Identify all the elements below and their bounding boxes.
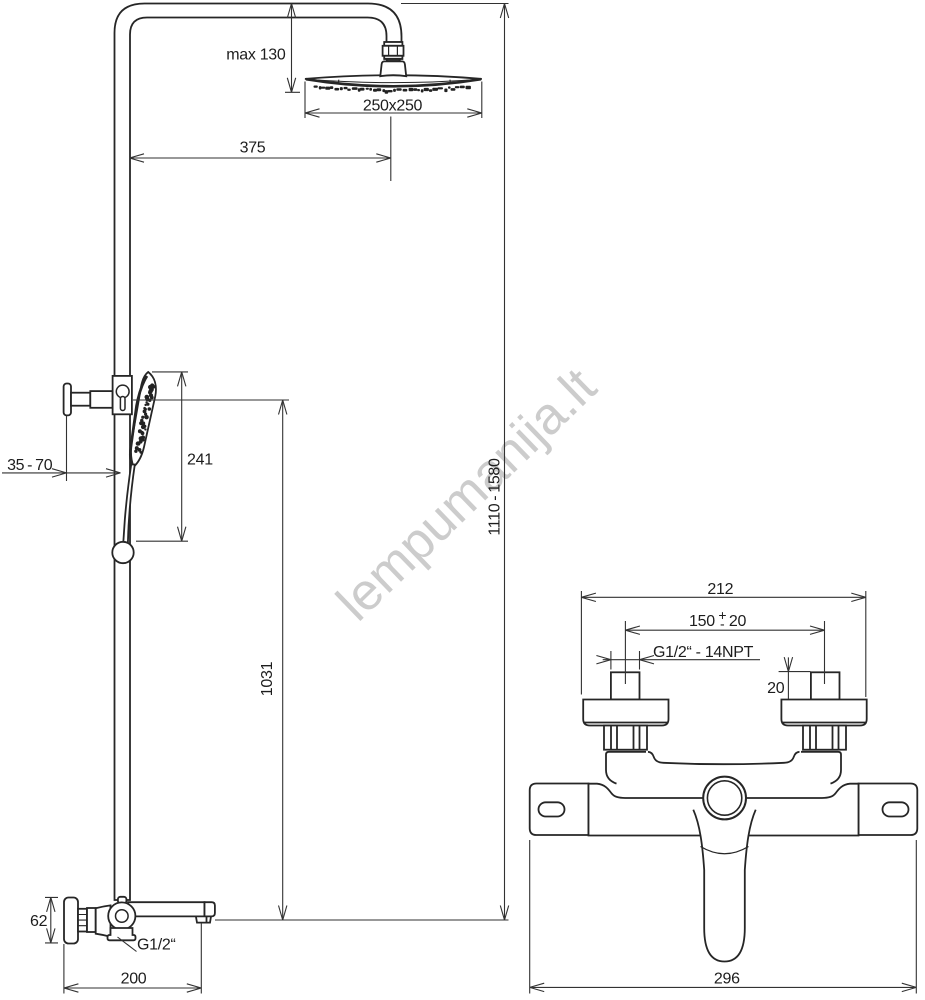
svg-text:-: - [720, 616, 725, 632]
svg-text:375: 375 [240, 140, 266, 157]
svg-text:20: 20 [729, 613, 747, 630]
svg-text:212: 212 [707, 581, 733, 598]
svg-text:20: 20 [767, 680, 785, 697]
svg-text:200: 200 [121, 971, 147, 988]
svg-text:35 - 70: 35 - 70 [7, 457, 53, 474]
svg-text:150: 150 [689, 613, 715, 630]
svg-text:62: 62 [30, 913, 48, 930]
svg-text:max 130: max 130 [226, 47, 286, 64]
svg-text:250x250: 250x250 [363, 98, 423, 115]
svg-text:lempumanija.lt: lempumanija.lt [326, 357, 608, 632]
svg-text:241: 241 [187, 452, 213, 469]
svg-text:1110 - 1580: 1110 - 1580 [487, 458, 504, 536]
svg-text:296: 296 [714, 971, 740, 988]
svg-text:1031: 1031 [259, 661, 276, 696]
svg-text:G1/2“: G1/2“ [137, 937, 176, 954]
svg-text:G1/2“ - 14NPT: G1/2“ - 14NPT [653, 644, 754, 661]
